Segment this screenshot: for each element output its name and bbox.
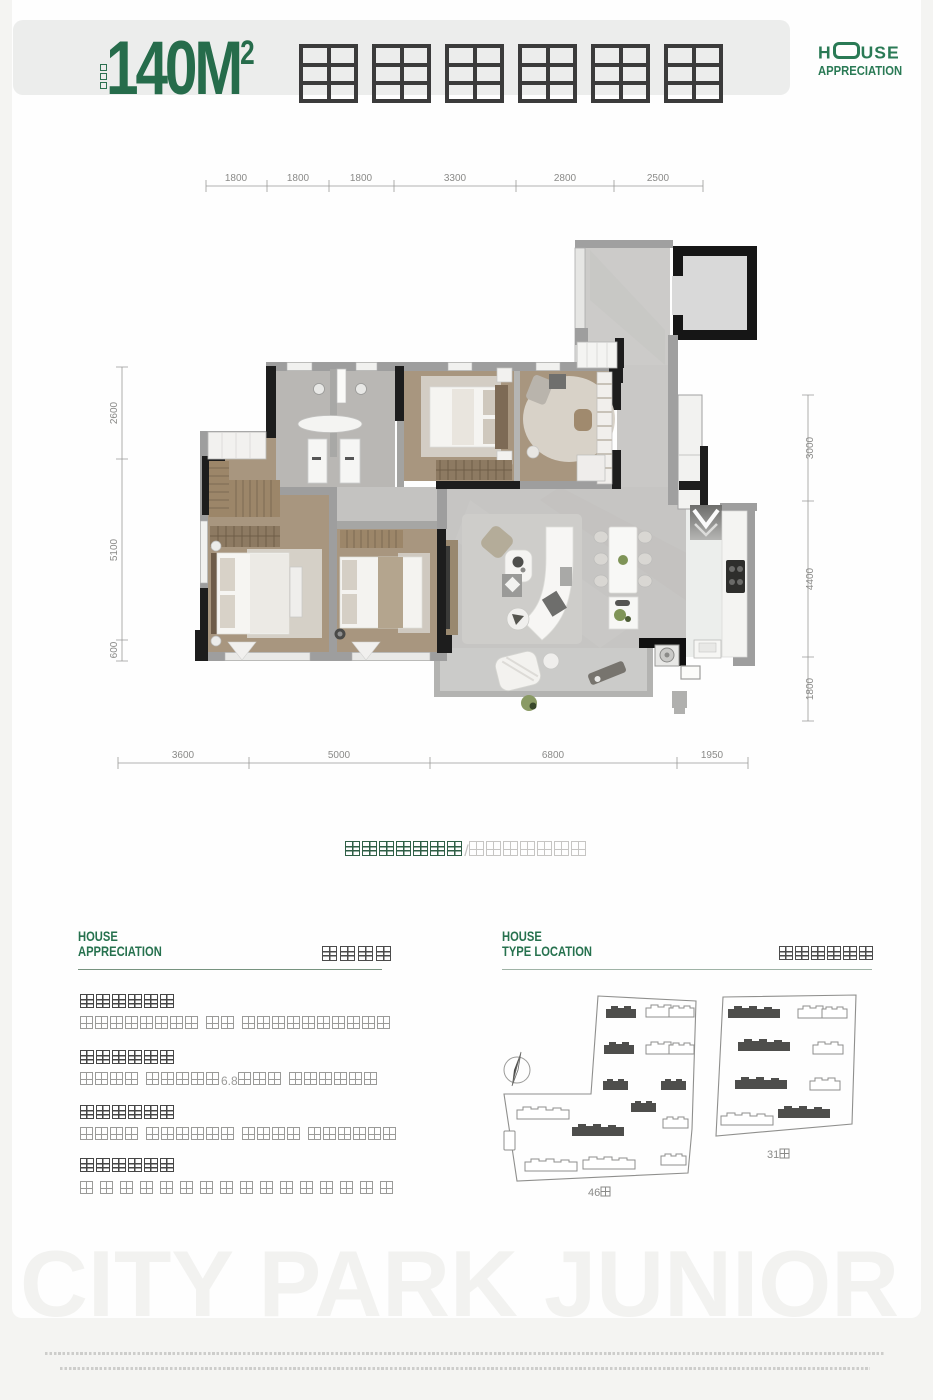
svg-text:46: 46 — [588, 1187, 600, 1199]
svg-text:31: 31 — [767, 1149, 779, 1161]
